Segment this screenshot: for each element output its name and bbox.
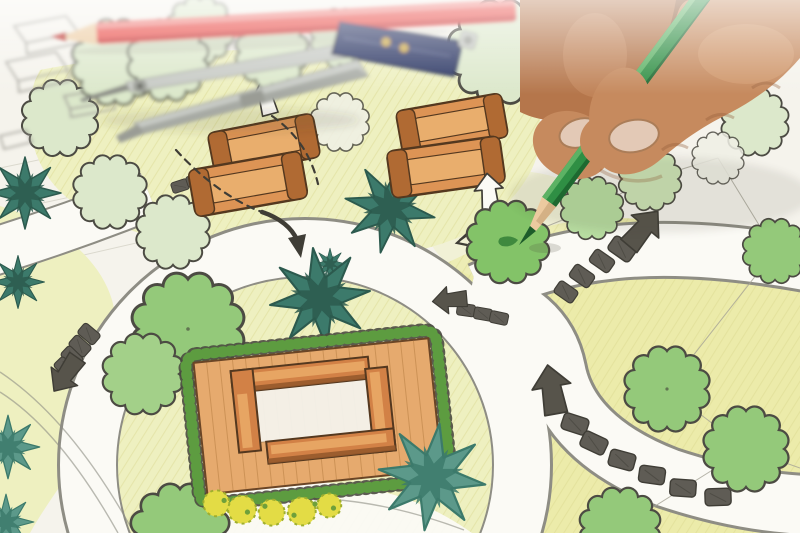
tree-center-dot	[186, 327, 190, 331]
tree	[73, 155, 146, 228]
stone	[705, 488, 732, 506]
photo-landscape-plan	[0, 0, 800, 533]
pencil-tip-shadow	[529, 243, 561, 253]
tree	[743, 219, 800, 283]
stone	[638, 465, 666, 485]
tree-center-dot	[665, 387, 668, 390]
tree	[103, 334, 184, 415]
stone	[669, 479, 696, 498]
top-vignette	[0, 0, 800, 95]
plan-photo-svg	[0, 0, 800, 533]
tree	[704, 407, 789, 492]
